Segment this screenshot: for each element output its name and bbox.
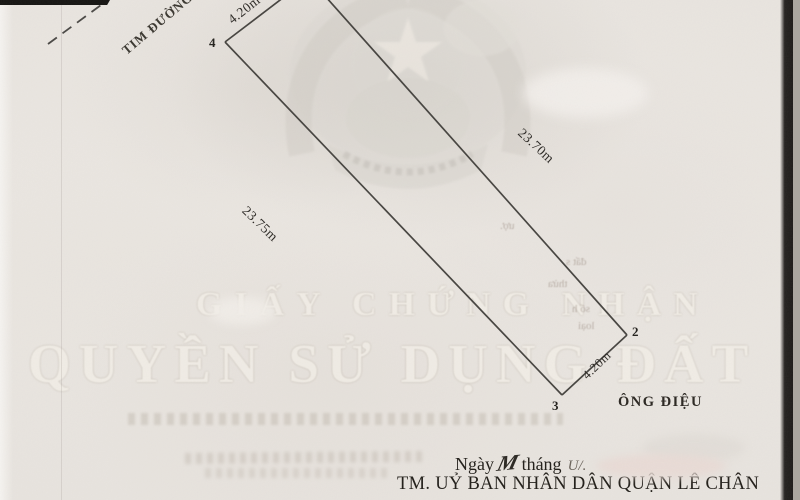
scan-edge-right-dark-band: [780, 0, 793, 500]
month-word: tháng: [522, 454, 562, 474]
parcel-diagram: [0, 0, 800, 500]
neighbor-label: ÔNG ĐIỆU: [618, 394, 703, 411]
corner-label-3: 3: [552, 398, 559, 414]
redaction-smudge-footer-pink: [596, 454, 726, 478]
redaction-smudge-mid-left: [208, 297, 276, 325]
handwritten-day: M: [494, 449, 521, 477]
road-centerline-dashed: [48, 0, 116, 44]
corner-label-4: 4: [209, 35, 216, 51]
corner-label-2: 2: [632, 324, 639, 340]
footer-date-line: NgàyMthángU/.: [455, 450, 586, 476]
redaction-smudge-top-right: [523, 68, 648, 118]
parcel-edge-left: [225, 42, 562, 395]
date-prefix: Ngày: [455, 454, 494, 474]
scan-edge-top-left-black: [0, 0, 110, 5]
scan-edge-right-gray: [793, 0, 800, 500]
parcel-edge-right: [309, 0, 627, 335]
handwritten-month: U/.: [568, 458, 587, 474]
scanned-certificate-page: GIẤY CHỨNG NHẬN QUYỀN SỬ DỤNG ĐẤT ượ. đấ…: [0, 0, 800, 500]
scan-edge-left: [0, 0, 13, 500]
paper-fold-line: [61, 0, 62, 500]
issuing-authority-line: TM. UỶ BAN NHÂN DÂN QUẬN LÊ CHÂN: [397, 474, 759, 495]
